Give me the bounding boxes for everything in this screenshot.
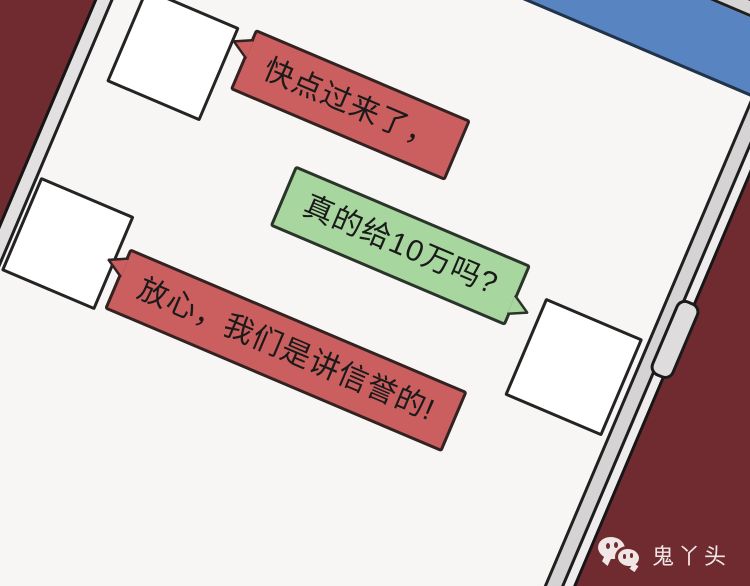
watermark: 鬼丫头 [598,537,730,573]
wechat-icon-eye [614,542,618,548]
chat-bubble-sent-1: 真的给10万吗? [270,165,531,325]
wechat-icon-eye [606,543,610,549]
watermark-text: 鬼丫头 [652,539,730,571]
bubble-tail-right-icon [506,294,533,322]
phone-screen: 快点过来了， 真的给10万吗? 放心，我们是讲信誉的! [0,0,750,586]
chat-bubble-received-1: 快点过来了， [230,29,471,181]
chat-bubble-text: 快点过来了， [258,53,442,156]
wechat-icon [598,537,644,573]
comic-panel: 快点过来了， 真的给10万吗? 放心，我们是讲信誉的! [0,0,750,586]
avatar-left-1 [106,0,240,122]
chat-bubble-text: 真的给10万吗? [298,189,502,301]
phone-frame: 快点过来了， 真的给10万吗? 放心，我们是讲信誉的! [0,0,750,586]
chat-bubble-text: 放心，我们是讲信誉的! [133,272,440,427]
